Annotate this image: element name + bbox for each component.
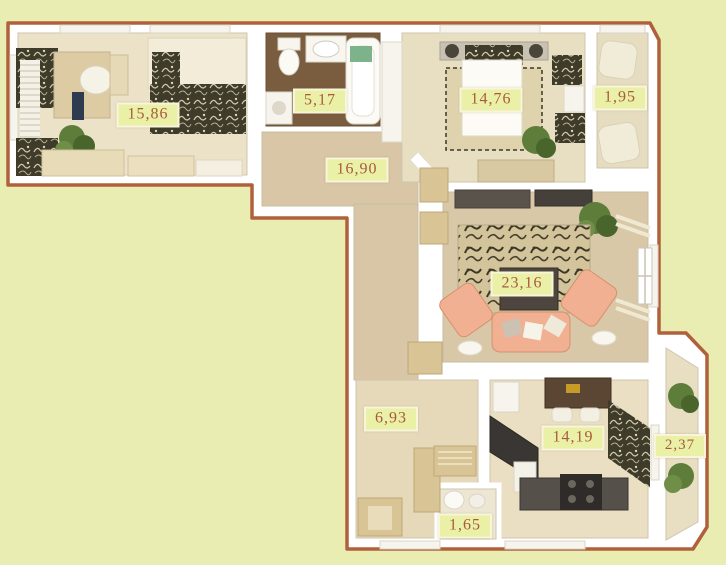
balcony-chair-2: [597, 121, 641, 165]
area-label-wc: 1,65: [438, 514, 492, 539]
towel-green: [350, 46, 372, 62]
closet: [420, 168, 448, 202]
bedside-lamp: [445, 44, 459, 58]
kitchen-chair-2: [580, 408, 600, 422]
closet-3: [408, 342, 442, 374]
sofa-floral-throw: [152, 52, 180, 88]
area-label-balcony-bottom: 2,37: [654, 434, 706, 458]
cabinet-low-2: [128, 156, 194, 176]
window-top-cabinet: [60, 25, 130, 33]
window-top-bedroom: [440, 25, 540, 33]
area-label-hallway: 16,90: [326, 158, 389, 183]
sofa-pillow-2: [523, 322, 544, 341]
balcony-chair: [598, 40, 639, 81]
sideboard: [455, 190, 530, 208]
toilet-bowl: [279, 49, 299, 75]
dresser-white: [564, 86, 584, 112]
toilet-tank: [278, 38, 300, 50]
fridge: [493, 382, 519, 412]
kitchen-chair: [552, 408, 572, 422]
area-label-bathroom: 5,17: [293, 89, 347, 114]
washing-machine-door: [272, 101, 286, 115]
wardrobe-tall: [382, 42, 402, 142]
wc-toilet: [444, 491, 464, 509]
table-item: [566, 384, 580, 393]
hall-bench-inner: [368, 506, 392, 530]
cabinet-low: [42, 150, 124, 176]
shoe-bench: [434, 446, 476, 476]
window-top-balcony: [600, 25, 645, 33]
window-bottom-hall: [380, 541, 440, 549]
area-label-living-room: 23,16: [491, 272, 554, 297]
floor-plan-stage: 15,86 5,17 16,90 14,76 1,95 23,16 6,93 1…: [0, 0, 726, 565]
plant-dark-top: [552, 55, 582, 85]
area-label-cabinet: 15,86: [117, 103, 180, 128]
plant-dark-bottom: [555, 113, 585, 143]
wc-sink: [469, 494, 485, 508]
closet-2: [420, 212, 448, 244]
tv-stand: [535, 190, 592, 206]
area-label-balcony-top: 1,95: [593, 86, 647, 111]
window-top-cabinet-2: [150, 25, 230, 33]
sink-basin: [313, 41, 339, 57]
area-label-bedroom: 14,76: [460, 88, 523, 113]
side-table: [458, 341, 482, 355]
side-table-2: [592, 331, 616, 345]
bench: [196, 160, 242, 176]
stove: [560, 474, 602, 510]
window-bottom-kitchen: [505, 541, 585, 549]
bedside-lamp-2: [529, 44, 543, 58]
area-label-kitchen: 14,19: [542, 426, 605, 451]
shelf: [110, 55, 128, 95]
area-label-corridor: 6,93: [364, 407, 418, 432]
window-blinds: [20, 60, 40, 138]
desk-chair: [80, 66, 112, 94]
monitor: [72, 92, 84, 120]
wardrobe-low: [478, 160, 554, 182]
